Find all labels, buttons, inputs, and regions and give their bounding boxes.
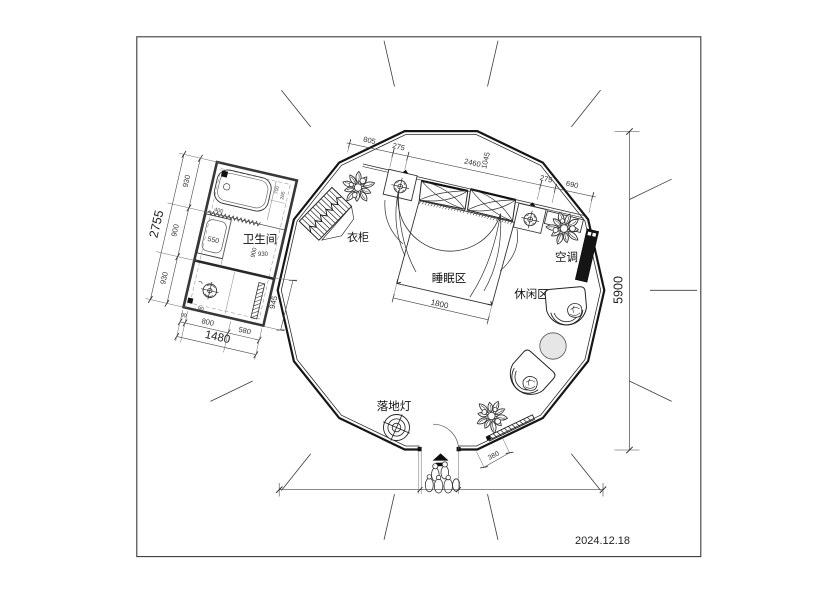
svg-text:空调: 空调	[555, 250, 578, 264]
svg-text:5900: 5900	[612, 276, 626, 304]
svg-text:休闲区: 休闲区	[514, 287, 549, 301]
svg-text:落地灯: 落地灯	[377, 400, 412, 413]
svg-text:930: 930	[258, 252, 269, 258]
svg-text:衣柜: 衣柜	[347, 230, 369, 244]
svg-text:卫生间: 卫生间	[243, 232, 278, 246]
svg-text:睡眠区: 睡眠区	[432, 272, 467, 285]
svg-text:2024.12.18: 2024.12.18	[575, 535, 630, 547]
